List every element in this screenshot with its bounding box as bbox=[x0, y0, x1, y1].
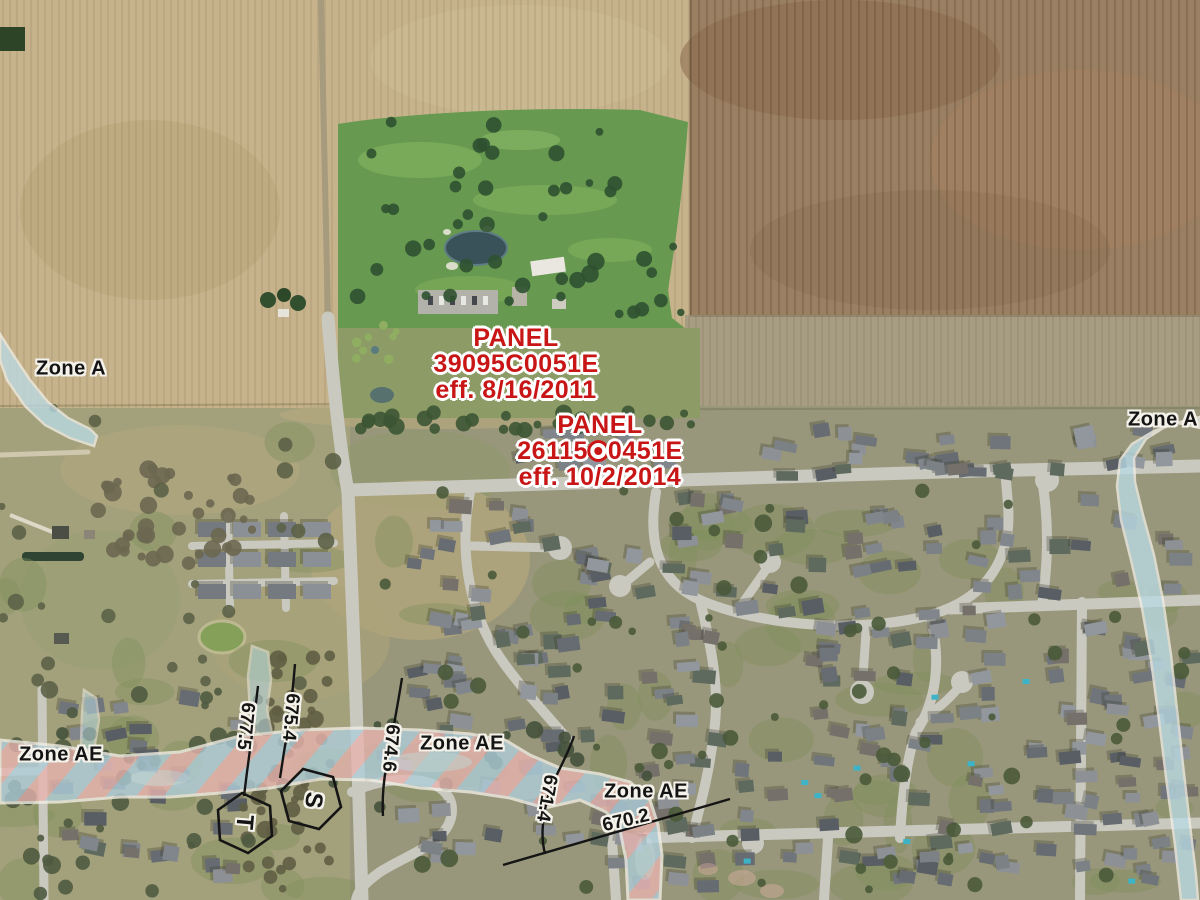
panel-effective-date: eff. 8/16/2011 bbox=[433, 377, 598, 403]
flood-map-viewport[interactable]: PANEL 39095C0051E eff. 8/16/2011 PANEL 2… bbox=[0, 0, 1200, 900]
panel-number-suffix: 0451E bbox=[608, 438, 683, 464]
panel-number: 39095C0051E bbox=[433, 351, 598, 377]
zone-ae-label-west: Zone AE bbox=[19, 744, 103, 767]
zone-a-label-northeast: Zone A bbox=[1128, 409, 1198, 432]
panel-number: 261150451E bbox=[517, 438, 682, 464]
panel-effective-date: eff. 10/2/2014 bbox=[517, 464, 682, 490]
zone-ae-label-south: Zone AE bbox=[604, 781, 688, 804]
firm-panel-annotation-26115C0451E: PANEL 261150451E eff. 10/2/2014 bbox=[517, 412, 682, 490]
firm-panel-annotation-39095C0051E: PANEL 39095C0051E eff. 8/16/2011 bbox=[433, 325, 598, 403]
bfe-value-label: 674.6 bbox=[377, 723, 403, 772]
small-pond bbox=[370, 387, 394, 403]
panel-number-prefix: 26115 bbox=[517, 438, 588, 464]
zone-ae-label-center: Zone AE bbox=[420, 733, 504, 756]
panel-title: PANEL bbox=[433, 325, 598, 351]
bfe-value-label: 675.4 bbox=[277, 692, 303, 741]
cross-section-letter-t: T bbox=[229, 813, 258, 830]
panel-title: PANEL bbox=[517, 412, 682, 438]
zone-a-label-northwest: Zone A bbox=[36, 358, 106, 381]
location-target-icon bbox=[587, 440, 609, 462]
